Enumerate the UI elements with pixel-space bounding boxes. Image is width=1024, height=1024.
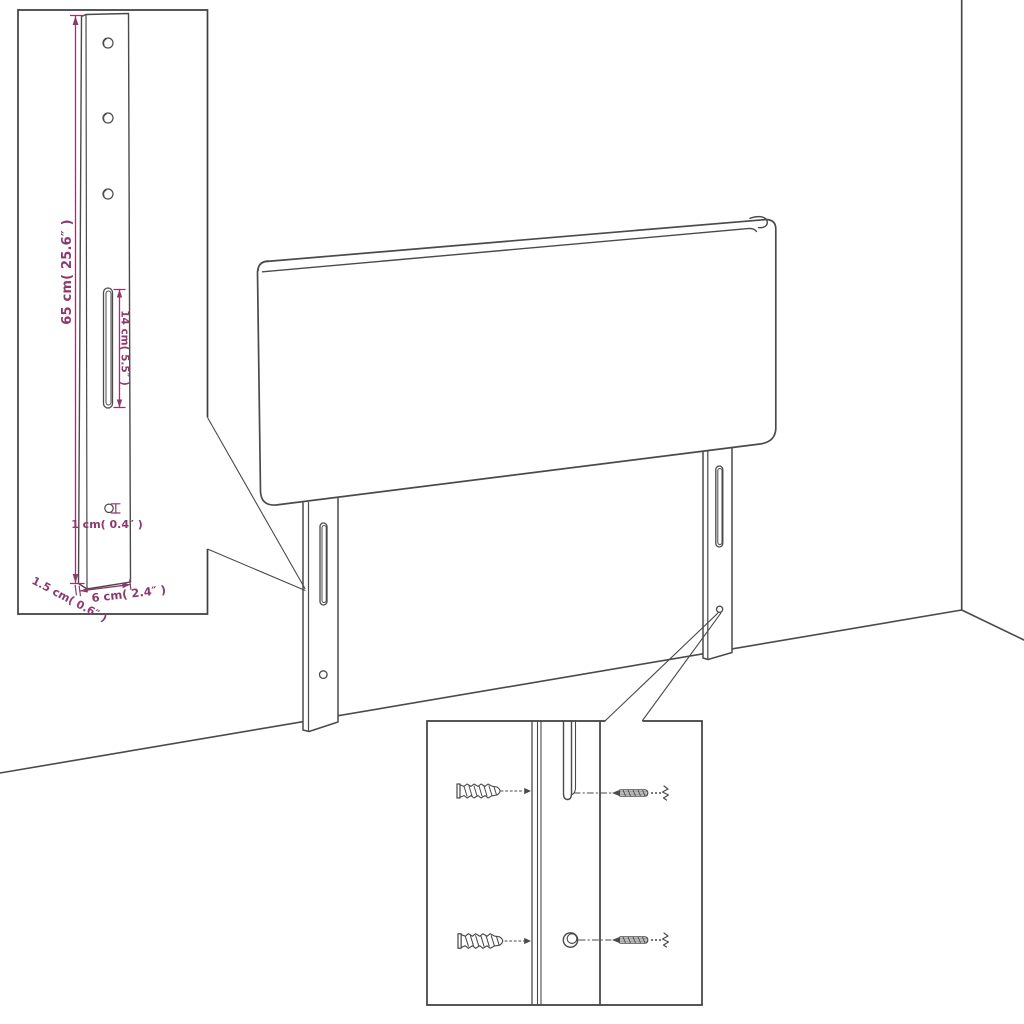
dim-hole-label: 1 cm( 0.4″ ) [71, 518, 143, 531]
screw-dot [659, 939, 661, 941]
headboard-panel [258, 220, 776, 506]
screw-dot [659, 792, 661, 794]
screw-dot [651, 939, 653, 941]
diagram-canvas: 65 cm( 25.6″ ) 14 cm( 5.5″ ) 1 cm( 0.4″ … [0, 0, 1024, 1024]
callout-line-lower [208, 549, 306, 590]
headboard [258, 217, 776, 505]
bracket-detail-inset: 65 cm( 25.6″ ) 14 cm( 5.5″ ) 1 cm( 0.4″ … [18, 10, 208, 625]
floor-wall-line-right [962, 610, 1024, 640]
dim-height-label: 65 cm( 25.6″ ) [60, 219, 75, 325]
screw-dot [651, 792, 653, 794]
assembly-diagram-svg: 65 cm( 25.6″ ) 14 cm( 5.5″ ) 1 cm( 0.4″ … [0, 0, 1024, 1024]
left-mounting-leg [303, 499, 338, 732]
screw-dot [655, 939, 657, 941]
screw-dot [655, 792, 657, 794]
hardware-detail-inset [427, 721, 702, 1005]
hardware-inset-border [427, 721, 702, 1005]
right-mounting-leg [703, 448, 732, 660]
dim-slot-label: 14 cm( 5.5″ ) [119, 310, 131, 386]
callout-line-right [643, 613, 721, 720]
